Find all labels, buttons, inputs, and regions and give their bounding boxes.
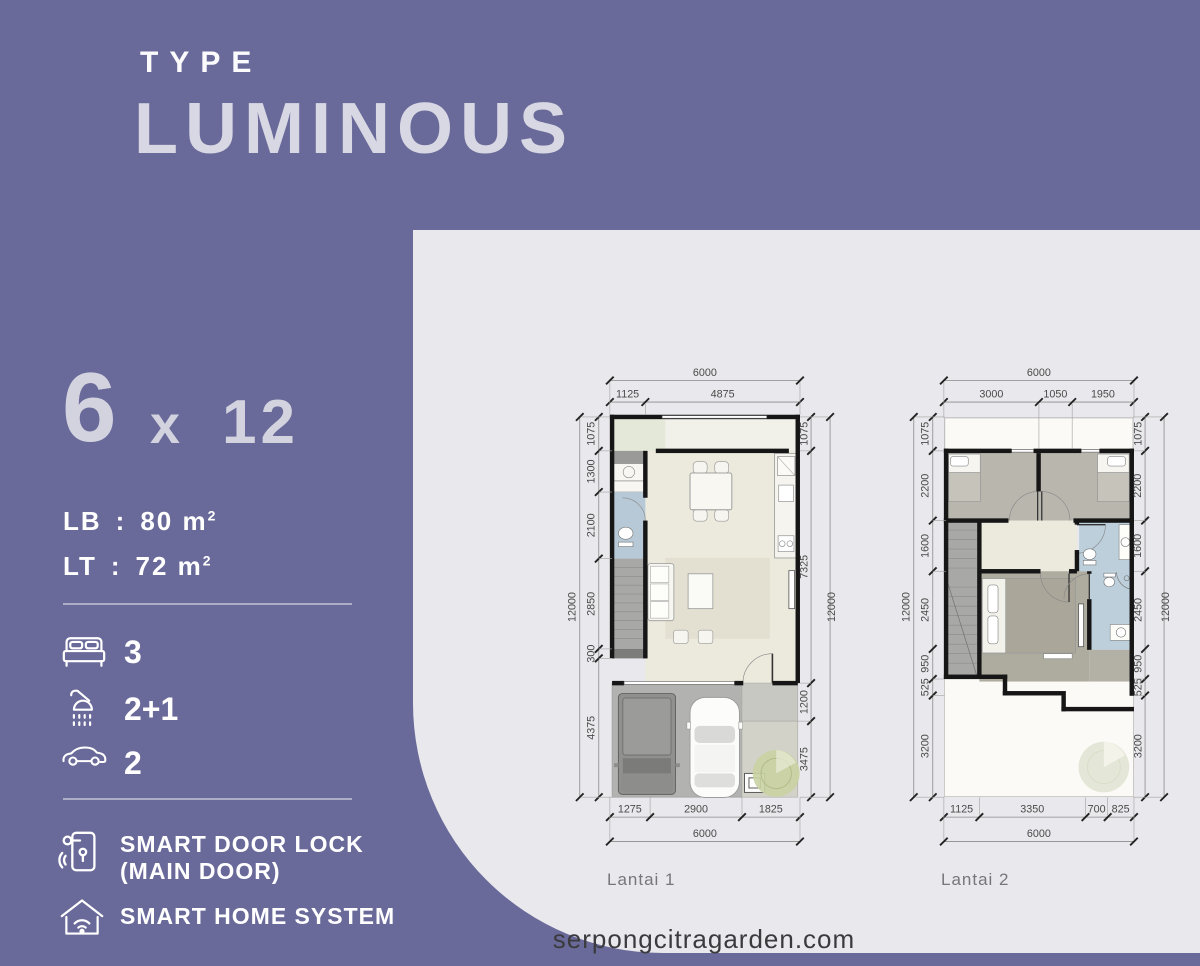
- brochure-page: TYPE LUMINOUS 6 x 12 LB:80 m2 LT:72 m2 3…: [0, 0, 1200, 966]
- svg-text:700: 700: [1088, 804, 1106, 816]
- svg-text:525: 525: [1132, 678, 1144, 696]
- svg-text:4375: 4375: [585, 716, 597, 740]
- svg-text:3200: 3200: [919, 734, 931, 758]
- svg-text:1050: 1050: [1043, 389, 1067, 401]
- svg-text:1950: 1950: [1091, 389, 1115, 401]
- toilet: [1104, 577, 1115, 587]
- size-width: 6: [62, 358, 117, 456]
- bench: [1044, 654, 1073, 659]
- kitchen-counter: [775, 453, 798, 558]
- svg-text:3200: 3200: [1132, 734, 1144, 758]
- tv-console: [1079, 604, 1084, 647]
- svg-text:1075: 1075: [585, 422, 597, 446]
- svg-text:2200: 2200: [919, 474, 931, 498]
- tv-cabinet: [789, 571, 795, 609]
- car-icon: [61, 743, 107, 769]
- svg-text:4875: 4875: [711, 389, 735, 401]
- size-depth: 12: [222, 392, 299, 454]
- svg-text:12000: 12000: [566, 592, 578, 622]
- feature-smart-door-lock: SMART DOOR LOCK (MAIN DOOR): [120, 831, 364, 885]
- pouf: [674, 630, 689, 643]
- svg-text:12000: 12000: [900, 592, 912, 622]
- svg-text:950: 950: [919, 655, 931, 673]
- svg-text:12000: 12000: [1160, 592, 1172, 622]
- svg-text:2850: 2850: [585, 592, 597, 616]
- tree: [753, 750, 800, 797]
- svg-text:7325: 7325: [798, 555, 810, 579]
- svg-text:525: 525: [919, 678, 931, 696]
- svg-text:6000: 6000: [693, 828, 717, 840]
- page-title: LUMINOUS: [134, 88, 574, 170]
- svg-text:825: 825: [1112, 804, 1130, 816]
- svg-text:1275: 1275: [618, 804, 642, 816]
- divider: [63, 798, 352, 800]
- svg-text:3475: 3475: [798, 747, 810, 771]
- stairs: [612, 559, 645, 649]
- divider: [63, 603, 352, 605]
- svg-text:6000: 6000: [1027, 828, 1051, 840]
- bathroom-1: [612, 492, 645, 559]
- svg-text:2200: 2200: [1132, 474, 1144, 498]
- bed-right: [1098, 454, 1130, 502]
- building-area-row: LB:80 m2: [63, 506, 217, 537]
- toilet: [1083, 549, 1096, 560]
- bedroom-count: 3: [124, 634, 142, 671]
- svg-text:2450: 2450: [1132, 598, 1144, 622]
- svg-text:2450: 2450: [919, 598, 931, 622]
- smart-door-lock-icon: [58, 828, 102, 876]
- toilet: [618, 527, 633, 539]
- svg-text:1300: 1300: [585, 459, 597, 483]
- smart-home-icon: [59, 896, 105, 938]
- svg-text:300: 300: [585, 645, 597, 663]
- master-bed: [982, 579, 1075, 653]
- plan-label-lantai-1: Lantai 1: [607, 870, 676, 890]
- svg-text:950: 950: [1132, 655, 1144, 673]
- website-url: serpongcitragarden.com: [504, 924, 904, 955]
- tree: [1079, 742, 1130, 793]
- carport-count: 2: [124, 745, 142, 782]
- stairs: [946, 521, 977, 679]
- car: [687, 697, 743, 797]
- svg-text:1825: 1825: [759, 804, 783, 816]
- feature-smart-home: SMART HOME SYSTEM: [120, 903, 395, 930]
- land-area-row: LT:72 m2: [63, 551, 213, 582]
- svg-text:1600: 1600: [1132, 534, 1144, 558]
- shower-icon: [64, 686, 100, 728]
- size-separator: x: [150, 398, 180, 452]
- svg-text:1075: 1075: [919, 422, 931, 446]
- svg-text:2100: 2100: [585, 513, 597, 537]
- pouf: [698, 630, 713, 643]
- type-eyebrow: TYPE: [140, 46, 262, 80]
- plan-label-lantai-2: Lantai 2: [941, 870, 1010, 890]
- svg-text:1600: 1600: [919, 534, 931, 558]
- pickup-truck: [614, 694, 680, 795]
- svg-text:3000: 3000: [979, 389, 1003, 401]
- coffee-table: [688, 574, 713, 609]
- svg-text:6000: 6000: [1027, 367, 1051, 379]
- bed-left: [949, 454, 981, 502]
- svg-text:12000: 12000: [826, 592, 838, 622]
- svg-text:1200: 1200: [798, 690, 810, 714]
- bathroom-count: 2+1: [124, 691, 178, 728]
- floorplan-lantai-1: 6000 1125 4875 12000 1075 1300 2100 2850…: [564, 352, 849, 897]
- sofa: [648, 564, 674, 621]
- svg-text:1075: 1075: [798, 422, 810, 446]
- svg-text:1125: 1125: [616, 389, 639, 401]
- svg-text:1125: 1125: [950, 804, 973, 816]
- svg-text:1075: 1075: [1132, 422, 1144, 446]
- floorplan-lantai-2: 6000 3000 1050 1950 12000 1075 2200 1600…: [898, 352, 1183, 897]
- svg-text:6000: 6000: [693, 367, 717, 379]
- svg-text:3350: 3350: [1020, 804, 1044, 816]
- rug: [665, 558, 770, 639]
- bed-icon: [62, 633, 106, 671]
- svg-text:2900: 2900: [684, 804, 708, 816]
